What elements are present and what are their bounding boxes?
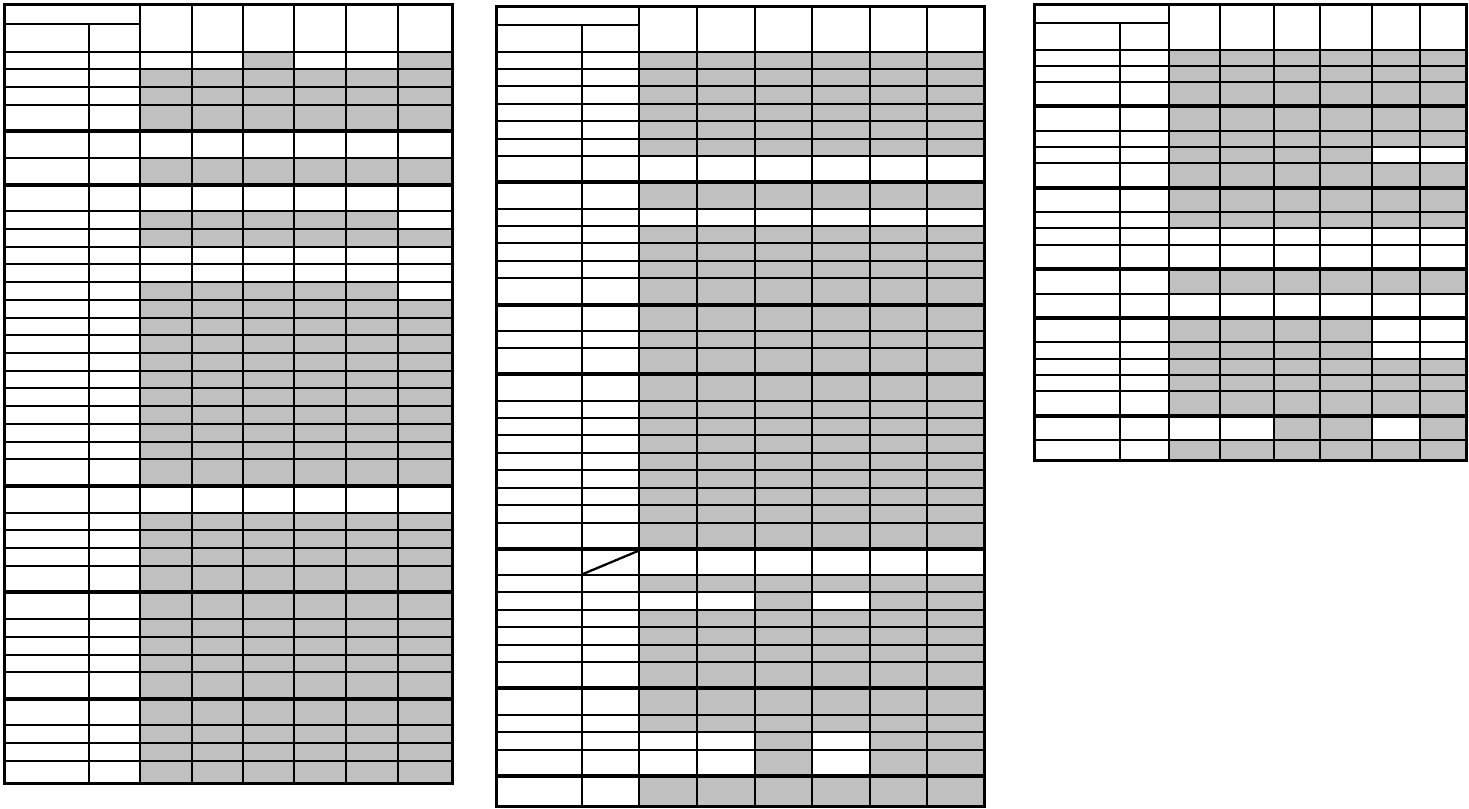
blank-cell (812, 209, 870, 226)
table-row (5, 637, 453, 655)
shaded-cell (243, 229, 294, 247)
table-row (497, 86, 985, 103)
shaded-cell (346, 69, 398, 87)
row-label-cell (497, 331, 582, 348)
shaded-cell (1274, 106, 1320, 130)
header-data-cell (1220, 5, 1274, 50)
blank-cell (927, 156, 985, 182)
shaded-cell (398, 158, 453, 185)
shaded-cell (1420, 82, 1467, 106)
blank-cell (346, 52, 398, 70)
shaded-cell (346, 655, 398, 673)
shaded-cell (870, 139, 927, 156)
shaded-cell (243, 699, 294, 726)
row-label-cell (5, 566, 89, 593)
row-label-cell (89, 52, 140, 70)
shaded-cell (140, 388, 192, 406)
table-row (5, 69, 453, 87)
shaded-cell (639, 575, 697, 592)
table-row (5, 131, 453, 158)
shaded-cell (755, 776, 812, 807)
header-data-cell (346, 5, 398, 52)
shaded-cell (697, 226, 755, 243)
blank-cell (697, 750, 755, 776)
blank-cell (1274, 245, 1320, 269)
shaded-cell (1320, 391, 1372, 415)
blank-cell (192, 264, 243, 282)
shaded-cell (1220, 106, 1274, 130)
blank-cell (755, 156, 812, 182)
shaded-cell (398, 353, 453, 371)
row-label-cell (1120, 106, 1169, 130)
shaded-cell (812, 575, 870, 592)
blank-cell (398, 211, 453, 229)
shaded-cell (1372, 212, 1420, 228)
shaded-cell (140, 318, 192, 336)
table-row (497, 715, 985, 732)
shaded-cell (243, 69, 294, 87)
shaded-cell (927, 69, 985, 86)
row-label-cell (89, 69, 140, 87)
table-row (5, 87, 453, 105)
row-label-cell (497, 645, 582, 662)
table-row (5, 185, 453, 212)
shaded-cell (639, 331, 697, 348)
row-label-cell (582, 156, 639, 182)
row-label-cell (582, 401, 639, 418)
shaded-cell (927, 662, 985, 688)
shaded-cell (927, 86, 985, 103)
shaded-cell (1169, 147, 1220, 163)
shaded-cell (346, 592, 398, 619)
row-label-cell (5, 406, 89, 424)
shaded-cell (927, 374, 985, 400)
shaded-cell (294, 548, 346, 566)
blank-cell (294, 131, 346, 158)
shaded-cell (398, 655, 453, 673)
shaded-cell (1220, 188, 1274, 212)
shaded-cell (870, 69, 927, 86)
shaded-cell (870, 331, 927, 348)
shaded-cell (140, 158, 192, 185)
shaded-cell (1372, 106, 1420, 130)
shaded-cell (294, 87, 346, 105)
shaded-cell (192, 300, 243, 318)
table-row (1035, 50, 1467, 66)
row-label-cell (1035, 416, 1120, 440)
shaded-cell (1220, 269, 1274, 293)
row-label-cell (5, 185, 89, 212)
blank-cell (697, 156, 755, 182)
shaded-cell (140, 566, 192, 593)
row-label-cell (497, 374, 582, 400)
shaded-cell (140, 442, 192, 460)
shaded-cell (1420, 106, 1467, 130)
shaded-cell (1420, 50, 1467, 66)
row-label-cell (497, 488, 582, 505)
shaded-cell (398, 424, 453, 442)
table-row (1035, 440, 1467, 461)
shaded-cell (870, 523, 927, 549)
shaded-cell (927, 182, 985, 208)
shaded-cell (243, 459, 294, 486)
table-row (497, 261, 985, 278)
shaded-cell (755, 453, 812, 470)
table-row (1035, 375, 1467, 391)
shaded-cell (755, 121, 812, 138)
table-row (497, 418, 985, 435)
row-label-cell (1120, 163, 1169, 187)
shaded-cell (346, 105, 398, 132)
table-row (497, 226, 985, 243)
shaded-cell (243, 424, 294, 442)
row-label-cell (5, 211, 89, 229)
row-label-cell (497, 688, 582, 714)
shaded-cell (697, 348, 755, 374)
shaded-cell (192, 548, 243, 566)
row-label-cell (89, 619, 140, 637)
shaded-cell (243, 52, 294, 70)
shaded-cell (1169, 106, 1220, 130)
shaded-cell (192, 530, 243, 548)
row-label-cell (582, 374, 639, 400)
shaded-cell (755, 688, 812, 714)
shaded-cell (812, 505, 870, 522)
shaded-cell (1220, 359, 1274, 375)
row-label-cell (497, 278, 582, 304)
blank-cell (1420, 245, 1467, 269)
table-row (497, 645, 985, 662)
table-row (1035, 131, 1467, 147)
shaded-cell (927, 435, 985, 452)
table-row (497, 305, 985, 331)
shaded-cell (346, 318, 398, 336)
row-label-cell (497, 52, 582, 69)
table-row (497, 104, 985, 121)
row-label-cell (89, 761, 140, 784)
shaded-cell (346, 566, 398, 593)
table-row (1035, 416, 1467, 440)
row-label-cell (582, 470, 639, 487)
blank-cell (639, 209, 697, 226)
header-data-cell (192, 5, 243, 52)
shaded-cell (1420, 440, 1467, 461)
row-label-cell (582, 732, 639, 749)
table-row (5, 699, 453, 726)
shaded-cell (346, 725, 398, 743)
shaded-cell (927, 139, 985, 156)
row-label-cell (1120, 294, 1169, 318)
row-label-cell (497, 209, 582, 226)
blank-cell (140, 247, 192, 265)
shaded-cell (639, 776, 697, 807)
shaded-cell (1420, 416, 1467, 440)
header-label-cell (5, 24, 89, 52)
header-label-cell (1120, 23, 1169, 50)
row-label-cell (582, 645, 639, 662)
row-label-cell (497, 610, 582, 627)
shaded-cell (927, 331, 985, 348)
shaded-cell (1372, 375, 1420, 391)
row-label-cell (1035, 66, 1120, 82)
shaded-cell (639, 69, 697, 86)
shaded-cell (140, 69, 192, 87)
shaded-cell (697, 776, 755, 807)
shaded-cell (812, 610, 870, 627)
blank-cell (398, 264, 453, 282)
shaded-cell (398, 105, 453, 132)
shaded-cell (870, 750, 927, 776)
table-row (5, 459, 453, 486)
shaded-cell (927, 305, 985, 331)
row-label-cell (5, 229, 89, 247)
row-label-cell (582, 209, 639, 226)
shaded-cell (639, 104, 697, 121)
blank-cell (639, 549, 697, 575)
shaded-cell (755, 226, 812, 243)
shaded-cell (398, 566, 453, 593)
shaded-cell (755, 69, 812, 86)
row-label-cell (582, 435, 639, 452)
row-label-cell (1120, 391, 1169, 415)
row-label-cell (497, 139, 582, 156)
blank-cell (294, 486, 346, 513)
shaded-cell (398, 548, 453, 566)
blank-cell (1274, 294, 1320, 318)
shaded-cell (639, 715, 697, 732)
shaded-cell (755, 732, 812, 749)
shaded-cell (243, 592, 294, 619)
shaded-cell (870, 52, 927, 69)
blank-cell (1420, 147, 1467, 163)
shaded-cell (870, 592, 927, 609)
shaded-cell (1372, 66, 1420, 82)
shaded-cell (870, 575, 927, 592)
row-label-cell (582, 592, 639, 609)
blank-cell (192, 185, 243, 212)
row-label-cell (89, 211, 140, 229)
shaded-cell (870, 732, 927, 749)
shaded-cell (192, 335, 243, 353)
table-row (497, 505, 985, 522)
table-row (5, 105, 453, 132)
shaded-cell (243, 548, 294, 566)
row-label-cell (89, 105, 140, 132)
shaded-cell (1274, 188, 1320, 212)
shaded-cell (1420, 131, 1467, 147)
shaded-cell (812, 776, 870, 807)
row-label-cell (89, 442, 140, 460)
table-row (5, 318, 453, 336)
blank-cell (1320, 294, 1372, 318)
row-label-cell (497, 401, 582, 418)
shaded-cell (346, 335, 398, 353)
blank-cell (1220, 416, 1274, 440)
blank-cell (294, 264, 346, 282)
shaded-cell (697, 374, 755, 400)
table-row (497, 209, 985, 226)
shaded-cell (755, 401, 812, 418)
shaded-cell (346, 637, 398, 655)
shaded-cell (1220, 342, 1274, 358)
row-label-cell (1035, 82, 1120, 106)
row-label-cell (1120, 50, 1169, 66)
blank-cell (697, 732, 755, 749)
shaded-cell (243, 655, 294, 673)
shaded-cell (755, 261, 812, 278)
table-row (5, 761, 453, 784)
row-label-cell (582, 662, 639, 688)
shaded-cell (927, 627, 985, 644)
shaded-cell (398, 335, 453, 353)
shaded-cell (870, 610, 927, 627)
shaded-cell (812, 348, 870, 374)
shaded-cell (755, 435, 812, 452)
shaded-cell (755, 750, 812, 776)
shaded-cell (346, 353, 398, 371)
shaded-cell (346, 300, 398, 318)
blank-cell (1420, 342, 1467, 358)
row-label-cell (582, 523, 639, 549)
blank-cell (755, 209, 812, 226)
shaded-cell (192, 87, 243, 105)
table-row (5, 424, 453, 442)
shaded-cell (812, 523, 870, 549)
shaded-cell (294, 282, 346, 300)
shaded-cell (639, 86, 697, 103)
shaded-cell (870, 121, 927, 138)
row-label-cell (5, 761, 89, 784)
table-row (1035, 318, 1467, 342)
row-label-cell (5, 442, 89, 460)
shaded-cell (755, 243, 812, 260)
shaded-cell (1274, 212, 1320, 228)
row-label-cell (5, 619, 89, 637)
shaded-cell (927, 226, 985, 243)
shaded-cell (398, 388, 453, 406)
shaded-cell (870, 470, 927, 487)
shaded-cell (755, 645, 812, 662)
shaded-cell (927, 401, 985, 418)
shaded-cell (1420, 375, 1467, 391)
row-label-cell (89, 229, 140, 247)
shaded-cell (192, 566, 243, 593)
table-row (1035, 269, 1467, 293)
row-label-cell (582, 69, 639, 86)
shaded-cell (927, 645, 985, 662)
table-row (497, 435, 985, 452)
shaded-cell (294, 442, 346, 460)
shaded-cell (346, 442, 398, 460)
shaded-cell (1420, 391, 1467, 415)
shaded-cell (1274, 440, 1320, 461)
row-label-cell (1035, 131, 1120, 147)
shaded-cell (192, 442, 243, 460)
shaded-cell (639, 453, 697, 470)
shaded-cell (140, 282, 192, 300)
row-label-cell (5, 318, 89, 336)
shaded-cell (1274, 269, 1320, 293)
blank-cell (1372, 245, 1420, 269)
shaded-cell (346, 459, 398, 486)
shaded-cell (812, 418, 870, 435)
shaded-cell (870, 645, 927, 662)
shaded-cell (192, 424, 243, 442)
shaded-cell (697, 645, 755, 662)
shaded-cell (755, 418, 812, 435)
row-label-cell (5, 158, 89, 185)
shaded-cell (1320, 66, 1372, 82)
shaded-cell (140, 406, 192, 424)
blank-cell (1274, 228, 1320, 244)
blank-cell (294, 52, 346, 70)
shaded-cell (398, 229, 453, 247)
header-data-cell (697, 7, 755, 52)
shaded-cell (870, 627, 927, 644)
row-label-cell (89, 486, 140, 513)
table-row (1035, 147, 1467, 163)
row-label-cell (5, 300, 89, 318)
table-row (497, 69, 985, 86)
shaded-cell (927, 575, 985, 592)
shaded-cell (1372, 440, 1420, 461)
row-label-cell (89, 566, 140, 593)
shaded-cell (927, 505, 985, 522)
shaded-cell (870, 226, 927, 243)
row-label-cell (5, 459, 89, 486)
row-label-cell (497, 470, 582, 487)
blank-cell (1169, 228, 1220, 244)
blank-cell (346, 486, 398, 513)
blank-cell (1372, 342, 1420, 358)
table-row (497, 139, 985, 156)
shaded-cell (140, 637, 192, 655)
row-label-cell (497, 523, 582, 549)
shaded-cell (140, 672, 192, 699)
table-row (497, 121, 985, 138)
shaded-cell (639, 305, 697, 331)
shaded-cell (294, 637, 346, 655)
shaded-cell (927, 488, 985, 505)
shaded-cell (697, 182, 755, 208)
shaded-cell (192, 371, 243, 389)
row-label-cell (89, 548, 140, 566)
header-data-cell (1320, 5, 1372, 50)
shaded-cell (1372, 359, 1420, 375)
shaded-cell (1169, 212, 1220, 228)
shaded-cell (639, 121, 697, 138)
header-merged-cell (497, 7, 639, 25)
shaded-cell (192, 699, 243, 726)
shaded-cell (243, 725, 294, 743)
shaded-cell (1320, 440, 1372, 461)
shaded-cell (1169, 82, 1220, 106)
shaded-cell (140, 211, 192, 229)
shaded-cell (140, 353, 192, 371)
row-label-cell (89, 247, 140, 265)
header-data-cell (927, 7, 985, 52)
shaded-cell (697, 52, 755, 69)
shaded-cell (1220, 318, 1274, 342)
shaded-cell (697, 470, 755, 487)
row-label-cell (497, 226, 582, 243)
shaded-cell (192, 406, 243, 424)
shaded-cell (294, 105, 346, 132)
row-label-cell (582, 715, 639, 732)
blank-cell (1320, 245, 1372, 269)
header-data-cell (1372, 5, 1420, 50)
shaded-cell (346, 424, 398, 442)
